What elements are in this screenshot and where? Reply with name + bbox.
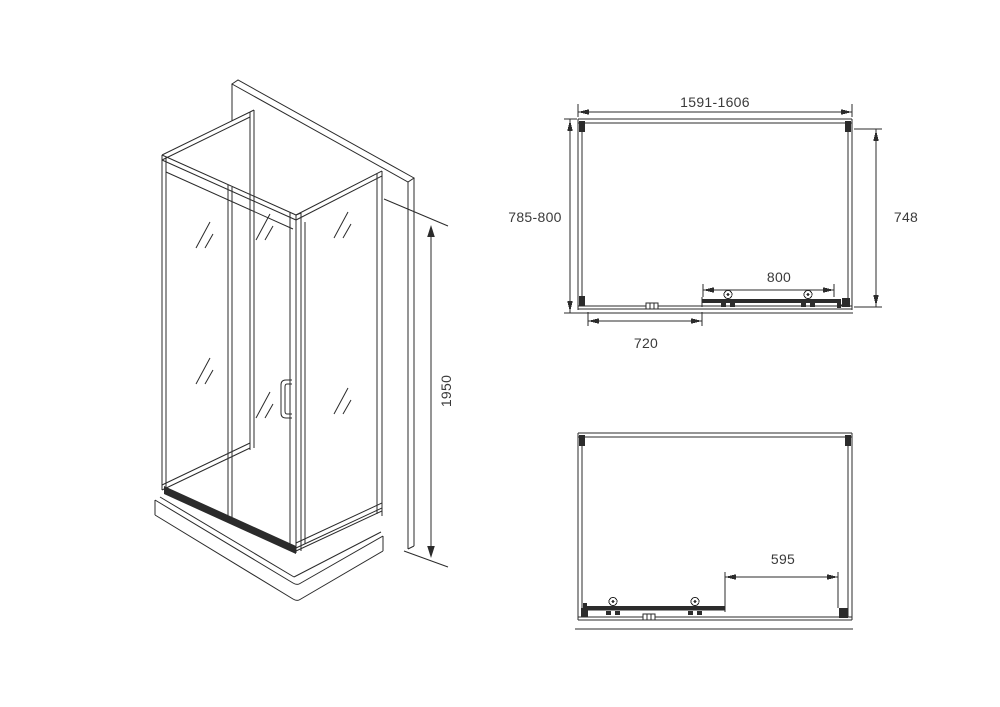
isometric-view	[155, 80, 448, 600]
door-width-dimension	[703, 284, 834, 297]
dim-label-depth-inner: 748	[894, 210, 918, 224]
depth-inner-dimension	[854, 129, 882, 307]
sliding-door-bar-open	[583, 598, 725, 616]
sliding-door-bar	[702, 291, 848, 309]
fixed-width-dimension	[588, 312, 702, 326]
dim-label-width: 1591-1606	[680, 95, 750, 109]
fixed-panel-handle-detail	[643, 614, 655, 620]
technical-drawing-canvas: 1591-1606 785-800 748 800 720 595 1950	[0, 0, 1000, 707]
shower-tray	[155, 497, 383, 600]
fixed-panel-handle-detail	[646, 303, 658, 309]
dim-label-fixed-width: 720	[634, 336, 658, 350]
dim-label-height: 1950	[439, 375, 453, 407]
left-side-panel	[162, 110, 254, 490]
enclosure-walls	[575, 119, 853, 313]
plan-view-bottom	[575, 433, 853, 629]
depth-outer-dimension	[564, 119, 577, 313]
drawing-linework	[0, 0, 1000, 707]
plan-view-top	[564, 104, 882, 326]
dim-label-opening: 595	[771, 552, 795, 566]
opening-dimension	[725, 572, 838, 608]
glass-shine-marks	[196, 212, 351, 418]
front-sliding-door-face	[162, 155, 301, 554]
roller-icon	[721, 291, 735, 308]
roller-icon	[801, 291, 815, 308]
dim-label-door-width: 800	[767, 270, 791, 284]
wall-panel	[232, 80, 414, 549]
dim-label-depth-outer: 785-800	[508, 210, 561, 224]
